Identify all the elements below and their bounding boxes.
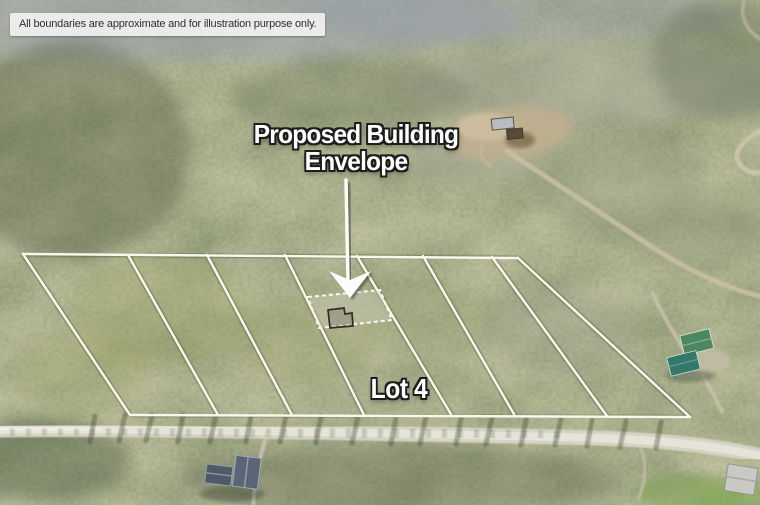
clearing-shed (506, 128, 523, 140)
building-envelope-title: Proposed Building Envelope (233, 121, 479, 175)
scene (0, 0, 760, 505)
lot-4-label: Lot 4 (355, 375, 443, 403)
title-line2: Envelope (233, 148, 479, 175)
disclaimer-banner: All boundaries are approximate and for i… (10, 13, 325, 36)
clearing-cottage (491, 117, 514, 130)
arrow-shaft (346, 180, 348, 282)
title-line1: Proposed Building (233, 121, 479, 148)
aerial-photo: All boundaries are approximate and for i… (0, 0, 760, 505)
